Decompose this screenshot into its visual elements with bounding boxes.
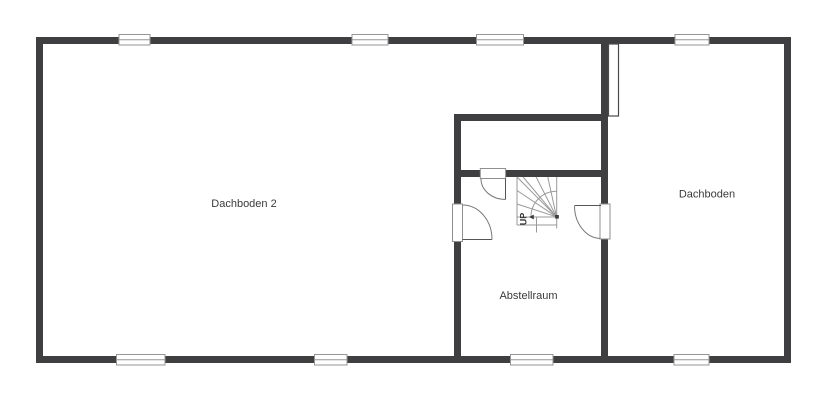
- svg-text:Abstellraum: Abstellraum: [499, 290, 557, 302]
- svg-text:UP: UP: [519, 213, 529, 226]
- svg-text:Dachboden: Dachboden: [679, 189, 735, 201]
- svg-text:Dachboden 2: Dachboden 2: [211, 198, 276, 210]
